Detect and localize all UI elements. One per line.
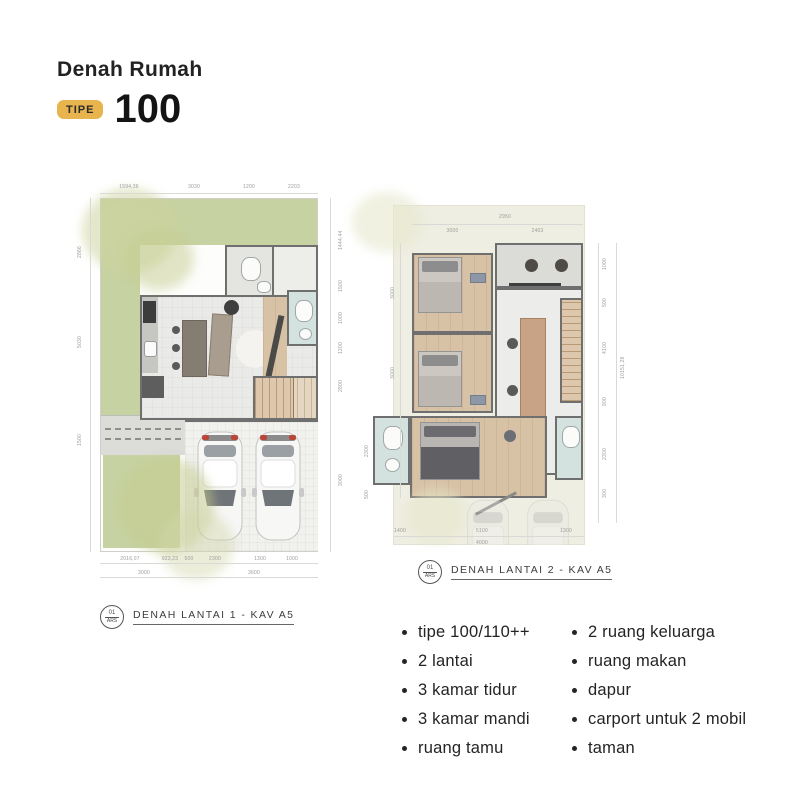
dim-label: 2300: [602, 434, 608, 474]
dim-label: 1300: [244, 556, 276, 562]
sink-fixture: [385, 458, 400, 472]
header: Denah Rumah TIPE 100: [57, 58, 203, 129]
feature-item: dapur: [588, 676, 746, 705]
type-badge: TIPE: [57, 100, 103, 119]
bathroom-top: [225, 245, 274, 297]
chair: [507, 385, 518, 396]
poster-canvas: Denah Rumah TIPE 100: [0, 0, 804, 804]
dim-label: 1000: [276, 556, 308, 562]
kitchen-cabinet: [142, 376, 164, 398]
dim-label: 5100: [462, 528, 502, 534]
bed: [418, 257, 462, 313]
bathroom-right: [287, 290, 318, 346]
dining-table: [182, 320, 207, 377]
dim-label: 1500: [338, 268, 344, 304]
staircase-1: [253, 376, 318, 420]
dim-label: 1400: [382, 528, 418, 534]
bathroom-left-2: [373, 416, 410, 485]
type-number: 100: [114, 89, 181, 129]
dim-label: 1300: [548, 528, 584, 534]
dim-label: 3000: [390, 350, 396, 396]
dim-label: 2300: [364, 428, 370, 474]
dim-label: 3030: [169, 184, 219, 190]
plan1-label-text: DENAH LANTAI 1 - KAV A5: [133, 609, 294, 625]
sink-fixture: [257, 281, 271, 293]
dining-chair: [172, 362, 180, 370]
ghost-carport: [458, 496, 582, 545]
dim-label: 300: [602, 480, 608, 508]
tree-blob: [406, 488, 466, 543]
balcony-chair: [525, 259, 538, 272]
dim-label: 2866: [77, 230, 83, 274]
balcony: [495, 243, 583, 288]
dim-line: [412, 224, 583, 225]
desk: [470, 273, 486, 283]
dim-line: [598, 243, 599, 523]
feature-item: ruang makan: [588, 647, 746, 676]
toilet-fixture: [562, 426, 580, 448]
dim-label: 10151,28: [620, 338, 626, 398]
car-icon: [252, 430, 304, 542]
drawing-number-bubble: 01 ARS: [418, 560, 442, 584]
dim-label: 2800: [338, 366, 344, 406]
page-title: Denah Rumah: [57, 58, 203, 82]
dim-line: [393, 536, 585, 537]
dim-line: [400, 243, 401, 498]
bathroom-right-2: [555, 416, 583, 480]
dim-label: 3000: [338, 458, 344, 502]
dim-label: 900: [602, 386, 608, 418]
round-stool: [224, 300, 239, 315]
dim-label: 1000: [602, 246, 608, 282]
dim-line: [100, 563, 318, 564]
dim-line: [100, 577, 318, 578]
feature-item: carport untuk 2 mobil: [588, 705, 746, 734]
paving-path: [101, 415, 185, 455]
plan1-title: 01 ARS DENAH LANTAI 1 - KAV A5: [100, 605, 294, 629]
staircase-2: [560, 298, 583, 403]
dim-label: 2300: [198, 556, 232, 562]
floor-plan-2: 2950 3000 2403 3000 3000 2300 500 1000 5…: [370, 198, 640, 618]
feature-item: 3 kamar tidur: [418, 676, 568, 705]
plan2-title: 01 ARS DENAH LANTAI 2 - KAV A5: [418, 560, 612, 584]
toilet-fixture: [295, 300, 313, 322]
dim-label: 4000: [462, 540, 502, 546]
dim-label: 1200: [224, 184, 274, 190]
feature-item: 2 ruang keluarga: [588, 618, 746, 647]
dim-label: 500: [602, 288, 608, 318]
dim-line: [100, 193, 318, 194]
feature-item: taman: [588, 734, 746, 763]
dim-label: 4100: [602, 326, 608, 370]
master-bed: [420, 422, 480, 480]
car-icon: [524, 498, 572, 545]
stool: [504, 430, 516, 442]
master-bedroom: [410, 416, 547, 498]
dim-line: [330, 198, 331, 552]
tree-blob: [159, 510, 234, 580]
feature-list: tipe 100/110++ 2 lantai 3 kamar tidur 3 …: [398, 618, 794, 763]
dim-label: 1500: [77, 418, 83, 462]
dim-label: 3000: [425, 228, 480, 234]
chair: [507, 338, 518, 349]
toilet-fixture: [241, 257, 261, 281]
dim-line: [616, 243, 617, 523]
dim-label: 1444,44: [338, 216, 344, 264]
dining-chair: [172, 326, 180, 334]
desk: [470, 395, 486, 405]
dim-label: 500: [364, 480, 370, 510]
dim-label: 2016,07: [110, 556, 150, 562]
dim-label: 1594,36: [104, 184, 154, 190]
dim-label: 3000: [124, 570, 164, 576]
car-icon: [464, 498, 512, 545]
tree-blob: [352, 192, 422, 252]
dim-label: 1000: [338, 302, 344, 334]
dim-label: 5030: [77, 320, 83, 364]
dim-line: [90, 198, 91, 552]
feature-column-1: tipe 100/110++ 2 lantai 3 kamar tidur 3 …: [398, 618, 568, 763]
plan2-label-text: DENAH LANTAI 2 - KAV A5: [451, 564, 612, 580]
feature-column-2: 2 ruang keluarga ruang makan dapur carpo…: [568, 618, 746, 763]
floor-plan-1: 1594,36 3030 1200 2203 2866 5030 1500 14…: [64, 180, 364, 650]
kitchen-counter: [142, 297, 158, 373]
drawing-number-bubble: 01 ARS: [100, 605, 124, 629]
dim-label: 2950: [475, 214, 535, 220]
kitchen-island: [208, 313, 233, 376]
feature-item: ruang tamu: [418, 734, 568, 763]
tree-blob: [124, 228, 194, 290]
dim-label: 3000: [390, 270, 396, 316]
dim-label: 3600: [234, 570, 274, 576]
feature-item: tipe 100/110++: [418, 618, 568, 647]
dining-chair: [172, 344, 180, 352]
bedroom-2: [412, 333, 493, 413]
sink-fixture: [299, 328, 312, 340]
dim-label: 1200: [338, 332, 344, 364]
balcony-chair: [555, 259, 568, 272]
bedroom-1: [412, 253, 493, 333]
feature-item: 3 kamar mandi: [418, 705, 568, 734]
feature-item: 2 lantai: [418, 647, 568, 676]
dim-label: 2203: [269, 184, 319, 190]
dim-label: 2403: [510, 228, 565, 234]
bed: [418, 351, 462, 407]
